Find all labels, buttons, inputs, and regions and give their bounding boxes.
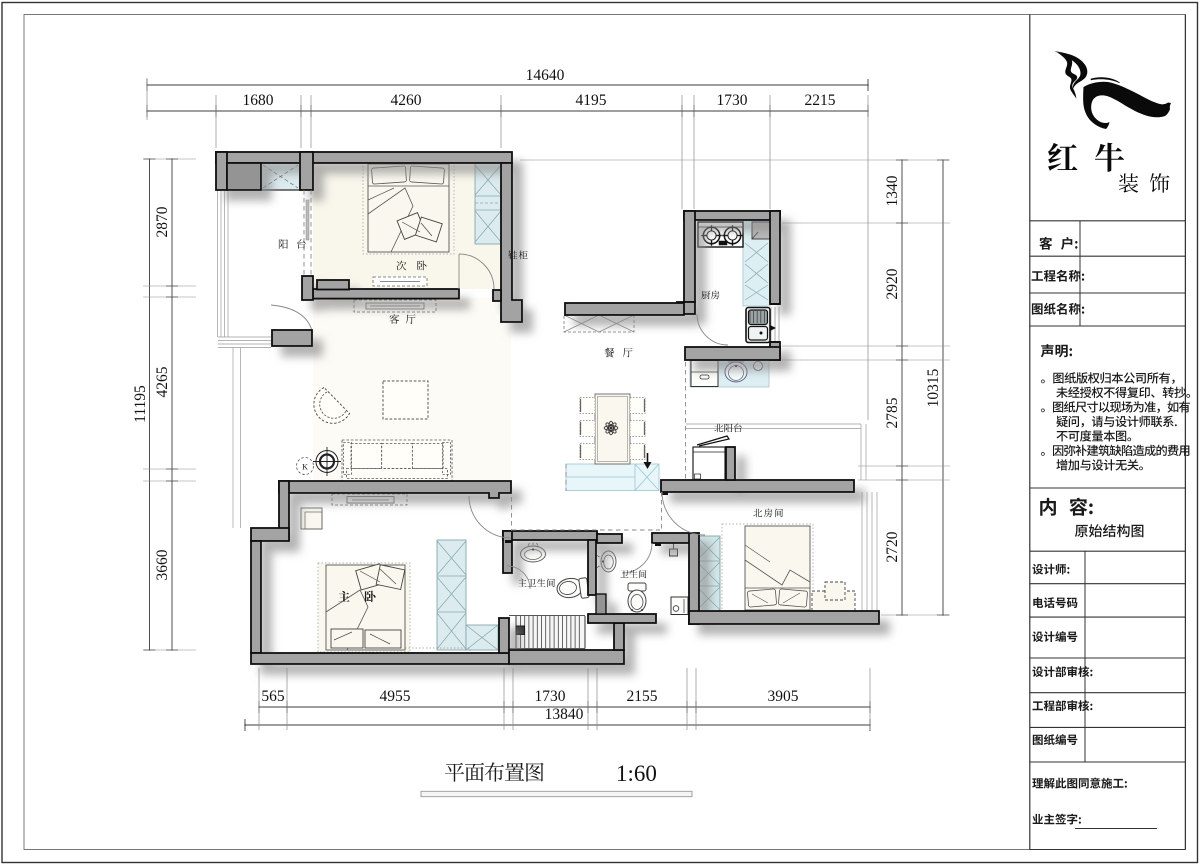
svg-text:14640: 14640 bbox=[526, 67, 565, 84]
svg-text:1730: 1730 bbox=[717, 92, 748, 109]
svg-text:2720: 2720 bbox=[884, 531, 901, 562]
svg-text:1730: 1730 bbox=[535, 688, 566, 705]
svg-text:1680: 1680 bbox=[243, 92, 274, 109]
svg-text:4955: 4955 bbox=[380, 688, 411, 705]
svg-text:1:60: 1:60 bbox=[616, 761, 657, 786]
svg-text:K: K bbox=[302, 463, 308, 472]
svg-text:3905: 3905 bbox=[768, 688, 799, 705]
svg-text:2920: 2920 bbox=[884, 268, 901, 299]
svg-text:13840: 13840 bbox=[545, 706, 584, 723]
svg-text:2870: 2870 bbox=[154, 206, 171, 237]
svg-text:3660: 3660 bbox=[154, 549, 171, 580]
svg-text:4195: 4195 bbox=[576, 92, 607, 109]
svg-text:2215: 2215 bbox=[805, 92, 836, 109]
svg-text:1340: 1340 bbox=[884, 175, 901, 206]
svg-text:4265: 4265 bbox=[154, 366, 171, 397]
svg-text:10315: 10315 bbox=[925, 368, 942, 407]
svg-text:565: 565 bbox=[261, 688, 285, 705]
svg-text:4260: 4260 bbox=[391, 92, 422, 109]
svg-text:2785: 2785 bbox=[884, 397, 901, 428]
svg-text:2155: 2155 bbox=[627, 688, 658, 705]
svg-text:11195: 11195 bbox=[132, 385, 149, 423]
